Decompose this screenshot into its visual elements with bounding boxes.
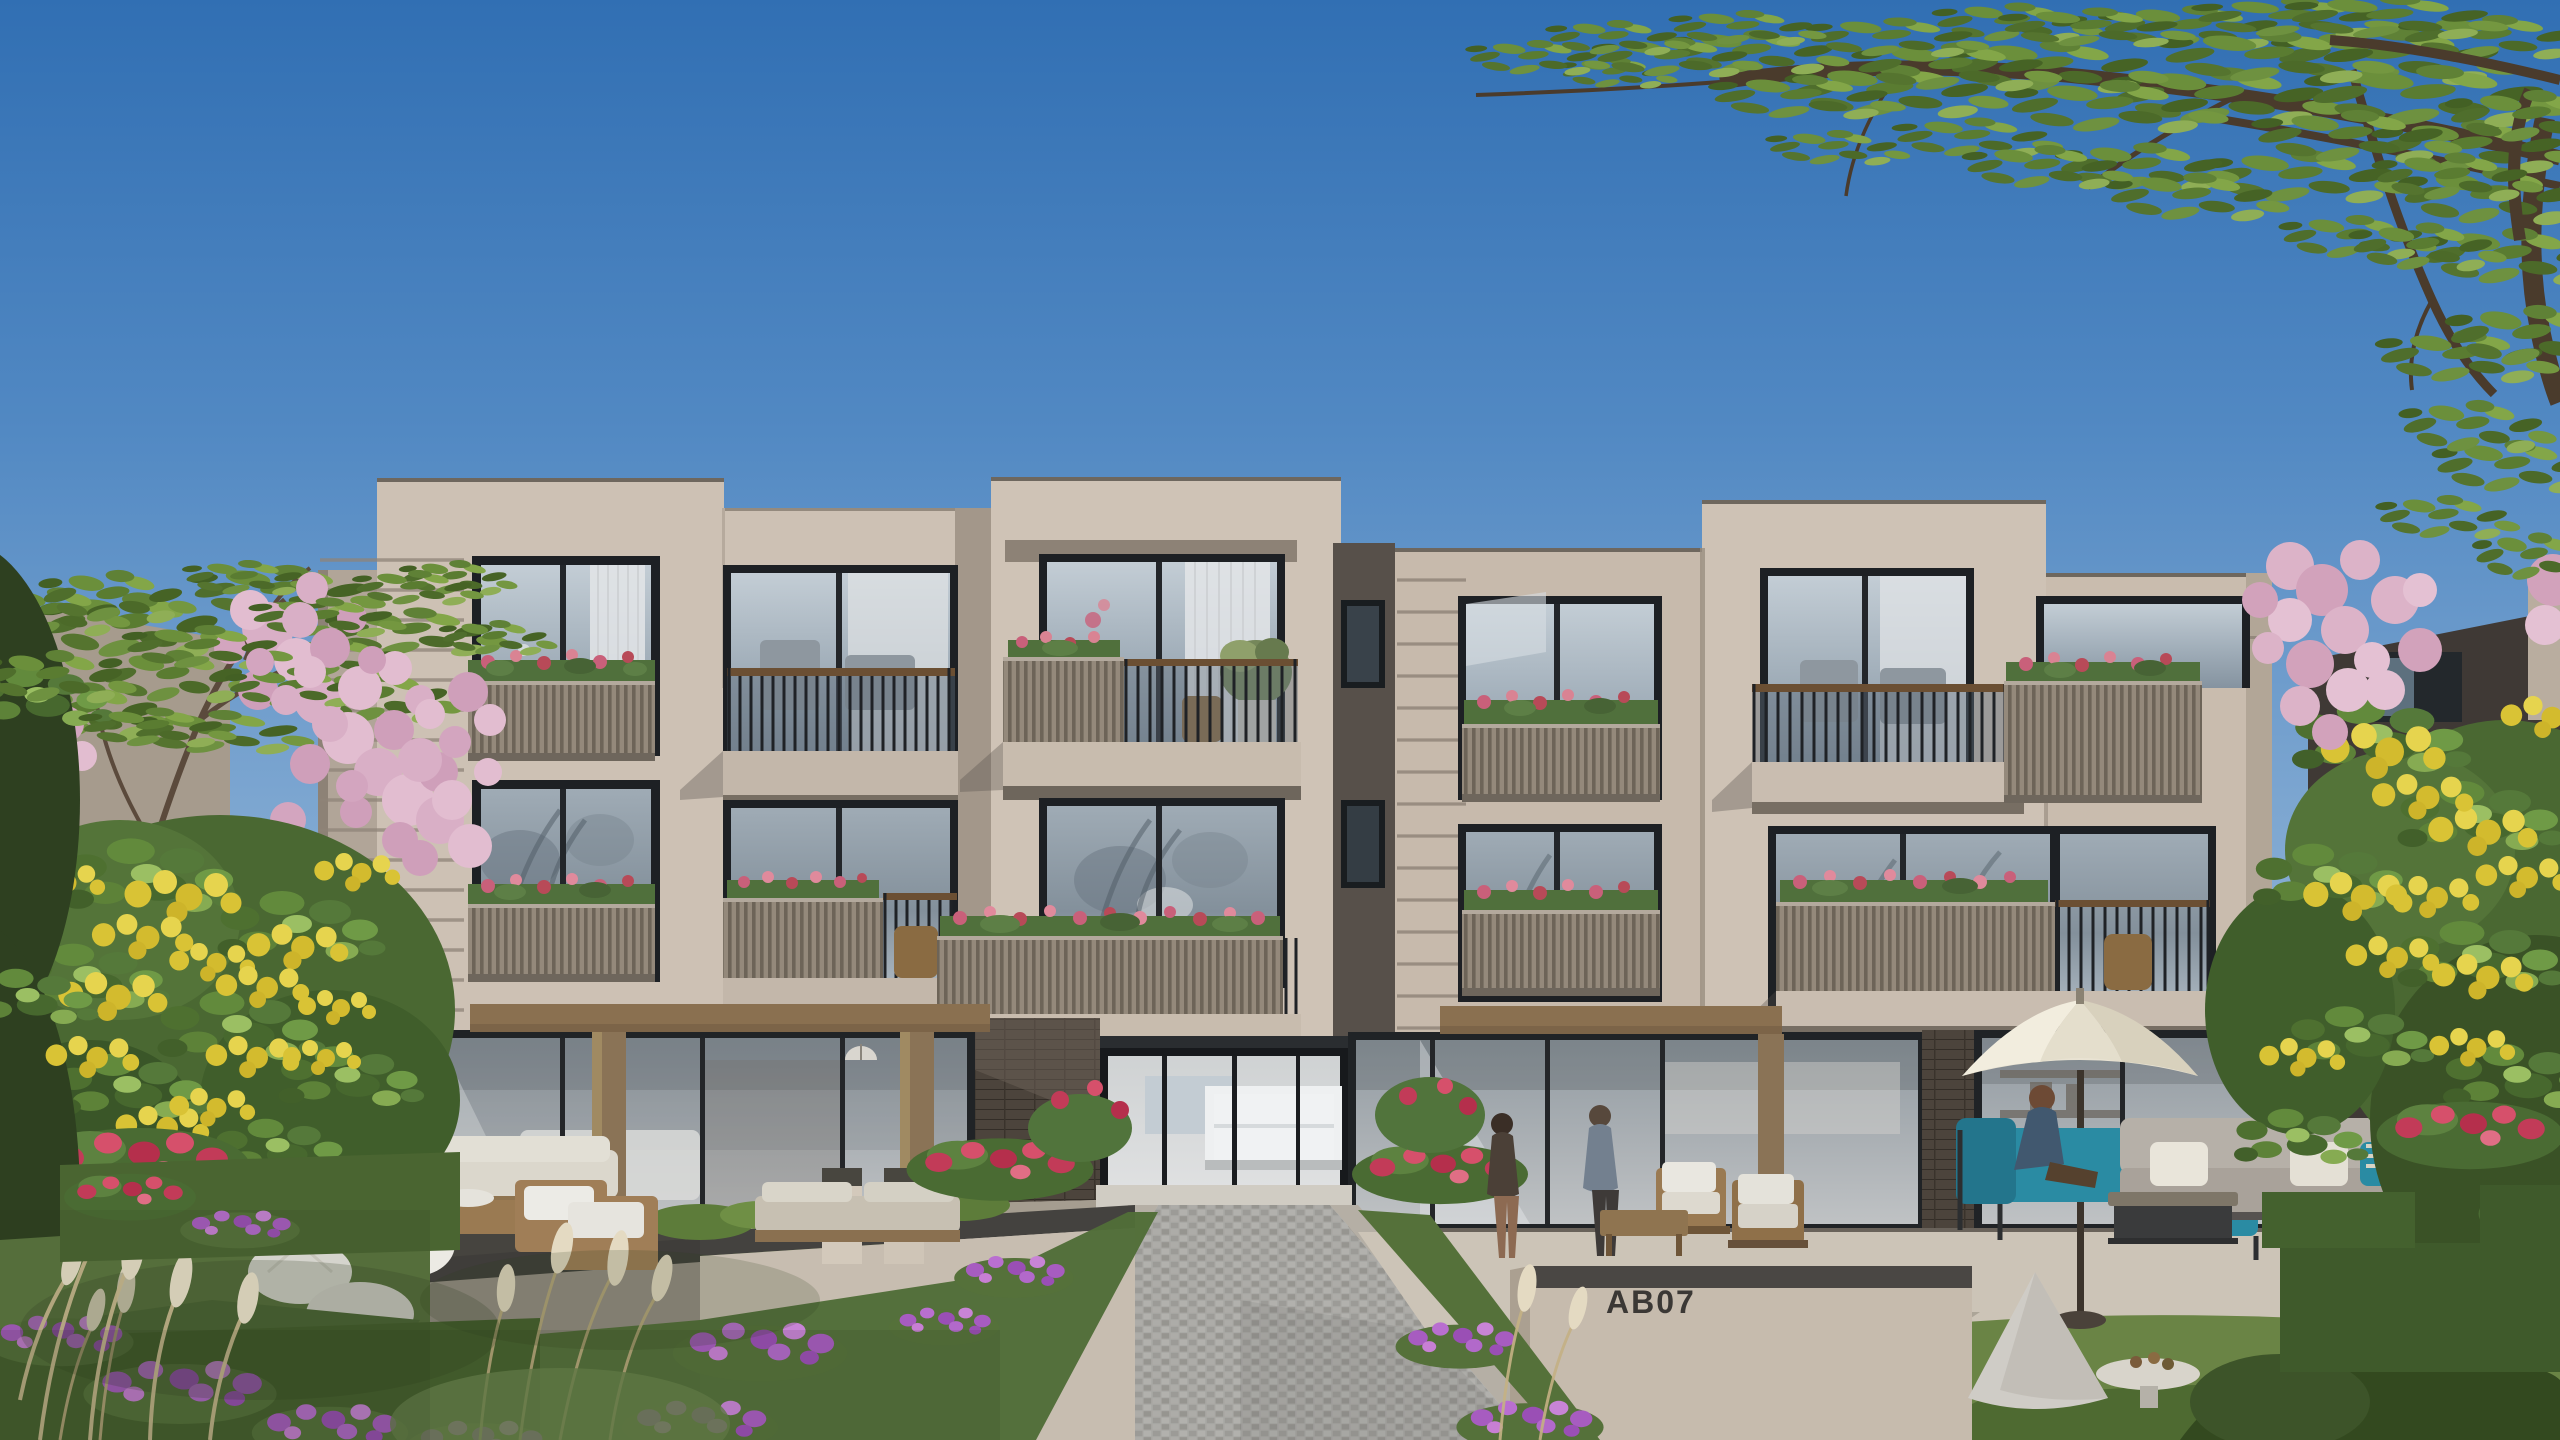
svg-text:AB07: AB07 <box>1606 1284 1696 1320</box>
